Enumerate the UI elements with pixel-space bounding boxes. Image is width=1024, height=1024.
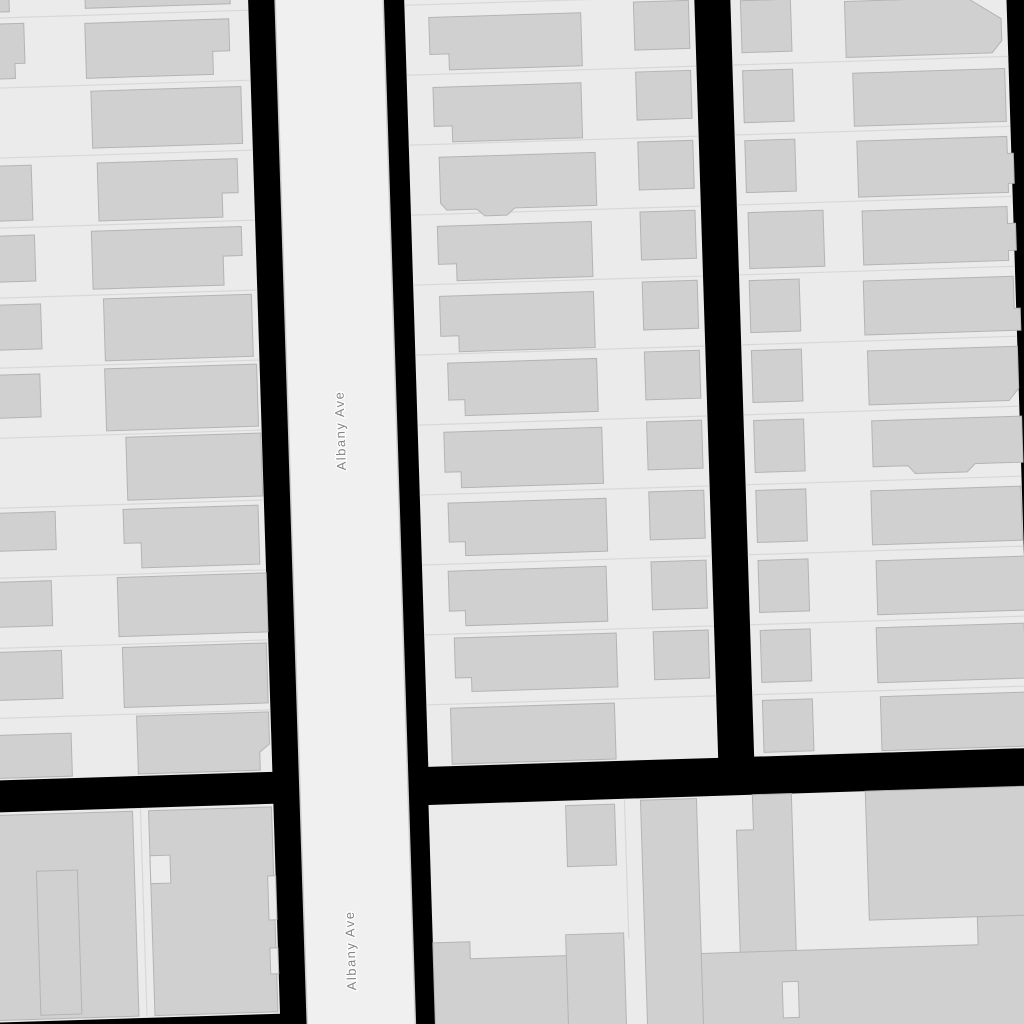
building-footprint bbox=[433, 83, 583, 143]
block-south-central bbox=[428, 785, 1024, 1024]
building-footprint bbox=[651, 560, 707, 610]
building-footprint bbox=[440, 292, 596, 353]
building-footprint bbox=[126, 433, 263, 500]
building-footprint bbox=[633, 0, 689, 50]
building-footprint bbox=[0, 733, 72, 779]
building-footprint bbox=[640, 210, 696, 260]
building-footprint bbox=[880, 692, 1024, 751]
road-label-albany-ave: Albany Ave bbox=[342, 910, 359, 990]
building-footprint bbox=[762, 699, 814, 753]
road-albany-ave bbox=[274, 0, 418, 1024]
block-northeast bbox=[729, 0, 1024, 757]
building-footprint bbox=[0, 304, 42, 351]
building-footprint bbox=[91, 86, 243, 148]
building-footprint bbox=[0, 811, 139, 1021]
building-footprint bbox=[0, 0, 9, 13]
building-footprint bbox=[137, 712, 271, 774]
building-footprint bbox=[91, 227, 243, 290]
building-footprint bbox=[448, 498, 608, 556]
building-footprint bbox=[756, 489, 808, 543]
block-northwest bbox=[0, 0, 272, 781]
building-footprint bbox=[876, 623, 1024, 683]
building-footprint bbox=[117, 573, 268, 637]
building-notch bbox=[150, 855, 171, 884]
building-footprint bbox=[448, 566, 608, 626]
building-notch bbox=[782, 981, 799, 1017]
building-footprint bbox=[760, 629, 812, 683]
building-footprint bbox=[636, 70, 692, 120]
building-footprint bbox=[751, 349, 803, 403]
building-footprint bbox=[103, 294, 253, 361]
building-notch bbox=[268, 876, 277, 920]
building-footprint bbox=[867, 346, 1019, 405]
map-canvas[interactable]: Albany AveAlbany Ave bbox=[0, 0, 1024, 1024]
building-footprint bbox=[450, 703, 616, 764]
block-southwest bbox=[0, 804, 280, 1023]
building-footprint bbox=[640, 799, 705, 1024]
building-footprint bbox=[97, 159, 239, 221]
building-footprint bbox=[0, 374, 41, 419]
building-footprint bbox=[85, 19, 231, 78]
building-footprint bbox=[758, 559, 810, 613]
building-notch bbox=[270, 948, 279, 974]
building-footprint bbox=[876, 556, 1024, 615]
map-rotated-layer: Albany AveAlbany Ave bbox=[0, 0, 1024, 1024]
building-footprint bbox=[844, 0, 1002, 57]
building-footprint bbox=[862, 206, 1017, 265]
building-footprint bbox=[853, 68, 1007, 126]
building-footprint bbox=[0, 650, 63, 701]
building-footprint bbox=[454, 633, 618, 692]
building-footprint bbox=[857, 136, 1015, 197]
building-footprint bbox=[754, 419, 806, 473]
building-footprint bbox=[863, 276, 1021, 335]
block-north-middle bbox=[403, 0, 718, 767]
building-footprint bbox=[123, 505, 260, 568]
building-footprint bbox=[871, 486, 1023, 545]
building-footprint bbox=[437, 222, 593, 282]
building-footprint bbox=[748, 210, 825, 268]
building-footprint bbox=[0, 512, 56, 552]
building-footprint bbox=[0, 235, 36, 283]
building-footprint bbox=[429, 13, 583, 71]
building-footprint bbox=[638, 140, 694, 190]
building-footprint bbox=[566, 804, 617, 867]
building-footprint bbox=[0, 165, 33, 222]
building-footprint bbox=[0, 581, 53, 628]
building-footprint bbox=[644, 350, 700, 400]
road-label-albany-ave: Albany Ave bbox=[331, 390, 348, 470]
building-footprint bbox=[865, 785, 1024, 920]
building-footprint bbox=[448, 358, 599, 416]
map-viewport[interactable]: Albany AveAlbany Ave bbox=[0, 0, 1024, 1024]
building-footprint bbox=[740, 0, 792, 53]
building-footprint bbox=[122, 643, 268, 707]
building-footprint bbox=[642, 280, 698, 330]
building-footprint bbox=[745, 139, 797, 193]
building-footprint bbox=[149, 807, 278, 1016]
building-footprint bbox=[649, 490, 705, 540]
building-footprint bbox=[647, 420, 703, 470]
building-footprint bbox=[743, 69, 795, 123]
building-footprint bbox=[566, 933, 629, 1024]
building-footprint bbox=[444, 427, 604, 488]
building-footprint bbox=[749, 279, 801, 333]
building-footprint bbox=[105, 364, 259, 431]
building-footprint bbox=[653, 630, 709, 680]
